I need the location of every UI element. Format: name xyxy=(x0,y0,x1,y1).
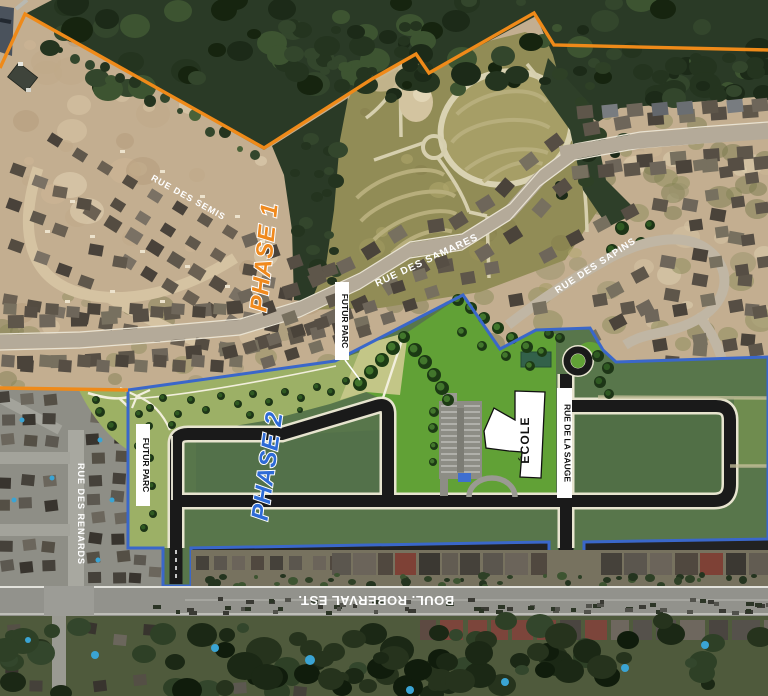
svg-text:RUE DE LA SAUGE: RUE DE LA SAUGE xyxy=(563,404,573,482)
svg-text:FUTUR PARC: FUTUR PARC xyxy=(141,438,151,493)
svg-text:FUTUR PARC: FUTUR PARC xyxy=(340,294,350,349)
svg-text:RUE DES RENARDS: RUE DES RENARDS xyxy=(76,463,86,565)
svg-text:ÉCOLE: ÉCOLE xyxy=(517,416,532,463)
svg-text:BOUL. ROBERVAL EST.: BOUL. ROBERVAL EST. xyxy=(298,593,454,608)
